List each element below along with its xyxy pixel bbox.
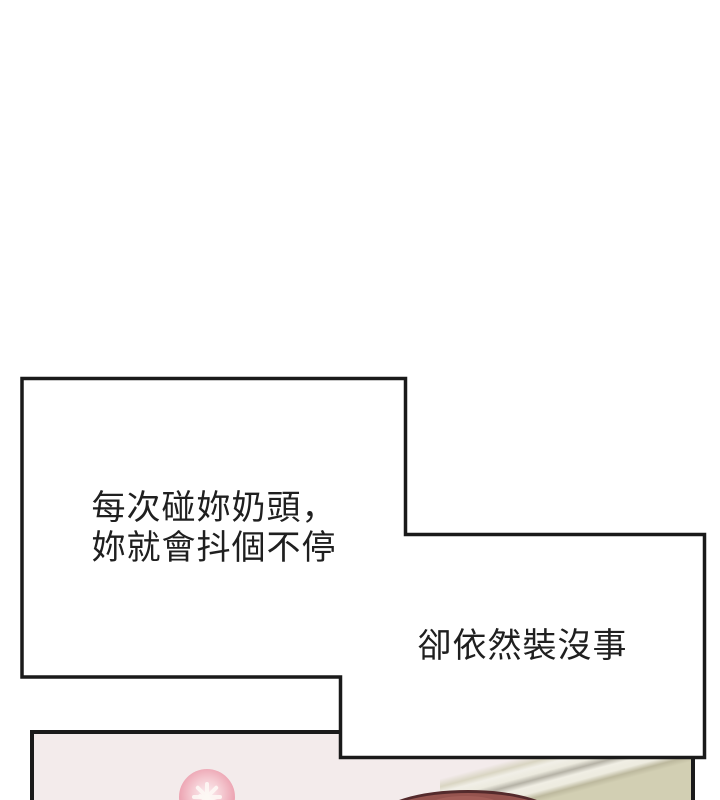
comic-page: 每次碰妳奶頭， 妳就會抖個不停 卻依然裝沒事 xyxy=(0,0,720,800)
speech-text-left-line1: 每次碰妳奶頭， xyxy=(92,488,337,528)
speech-text-right: 卻依然裝沒事 xyxy=(340,534,705,758)
speech-text-left-line2: 妳就會抖個不停 xyxy=(92,528,337,568)
speech-text-right-line1: 卻依然裝沒事 xyxy=(418,626,628,666)
